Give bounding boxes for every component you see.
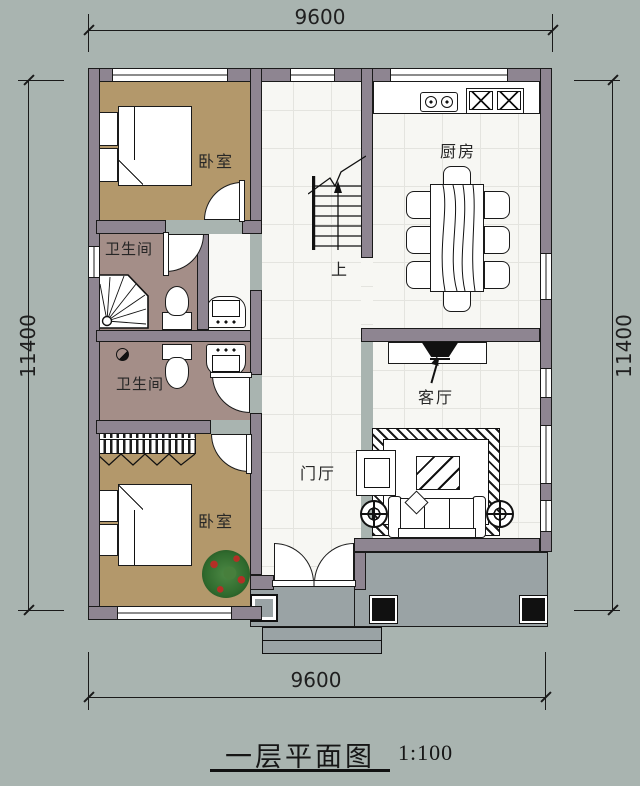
wall-entrance-stub-left bbox=[250, 575, 274, 590]
dining-table-woodgrain bbox=[431, 185, 483, 291]
potted-plant bbox=[202, 550, 250, 598]
room-label-bedroom-bottom: 卧室 bbox=[198, 508, 234, 532]
dining-chair bbox=[484, 191, 510, 219]
room-label-foyer: 门厅 bbox=[300, 460, 336, 484]
blanket-fold bbox=[119, 485, 143, 510]
wall-door-jamb bbox=[242, 220, 262, 234]
wall-bathroom-divider bbox=[96, 330, 262, 342]
sofa-cushion-line bbox=[449, 499, 450, 529]
floor-passage bbox=[361, 258, 373, 328]
dim-label-bottom: 9600 bbox=[266, 668, 366, 692]
side-table-round bbox=[360, 500, 388, 528]
dim-label-top: 9600 bbox=[270, 5, 370, 29]
entrance-door-leaves bbox=[272, 580, 356, 587]
nightstand bbox=[98, 148, 118, 182]
washbasin-upper-bowl bbox=[212, 300, 240, 317]
wall-bedroom-top-right bbox=[250, 68, 262, 234]
dining-chair bbox=[484, 261, 510, 289]
porch-column-right bbox=[520, 596, 547, 623]
stairs-up-label: 上 bbox=[331, 256, 349, 280]
dim-ext-line bbox=[552, 14, 553, 52]
wall-bathroom-bottom-bottom bbox=[96, 420, 211, 434]
nightstand bbox=[98, 112, 118, 146]
nightstand bbox=[98, 524, 118, 556]
floor-plan-canvas: 卧室 卫生间 卫生间 卧室 厨房 客厅 门厅 上 9600 9600 11400… bbox=[0, 0, 640, 786]
toilet-bowl-bottom bbox=[165, 357, 189, 389]
coffee-table bbox=[416, 456, 460, 490]
room-label-kitchen: 厨房 bbox=[440, 138, 476, 162]
dim-line-bottom bbox=[88, 697, 546, 698]
wall-outer-left bbox=[88, 68, 100, 620]
plan-title-underline bbox=[210, 769, 390, 772]
wall-bedroom-top-bottom bbox=[96, 220, 166, 234]
dining-chair bbox=[443, 290, 471, 312]
room-label-bedroom-top: 卧室 bbox=[198, 148, 234, 172]
washbasin-lower-bowl bbox=[212, 355, 240, 372]
cooktop-burner bbox=[441, 96, 453, 108]
window-hall-top bbox=[290, 68, 335, 82]
dining-chair bbox=[484, 226, 510, 254]
door-leaf-bathroom-bottom bbox=[210, 372, 252, 378]
toilet-bowl-top bbox=[165, 286, 189, 316]
dim-line-top bbox=[88, 30, 552, 31]
window-kitchen-right bbox=[540, 253, 552, 300]
sink-basin-right bbox=[497, 91, 521, 110]
washbasin-lower-taps bbox=[215, 348, 237, 352]
dim-ext-line bbox=[88, 652, 89, 710]
window-living-right-1 bbox=[540, 368, 552, 398]
dim-ext-line bbox=[88, 14, 89, 52]
window-bedroom-top bbox=[112, 68, 228, 82]
floor-drain bbox=[116, 348, 129, 361]
wardrobe-hanger-zigzag bbox=[96, 453, 196, 467]
wall-hall-left-upper bbox=[250, 290, 262, 375]
wardrobe-shelf-line bbox=[97, 438, 195, 439]
dim-label-left: 11400 bbox=[16, 314, 40, 378]
dim-label-right: 11400 bbox=[612, 314, 636, 378]
window-bedroom-bottom bbox=[117, 606, 232, 620]
window-living-right-2 bbox=[540, 425, 552, 484]
porch-step-2 bbox=[262, 640, 382, 654]
sofa-back bbox=[398, 528, 476, 538]
room-label-living-room: 客厅 bbox=[418, 384, 454, 408]
door-leaf-bedroom-bottom bbox=[246, 434, 252, 474]
corner-shower bbox=[98, 274, 150, 330]
window-bathroom-left bbox=[88, 246, 100, 278]
porch-column-middle bbox=[370, 596, 397, 623]
dining-chair bbox=[406, 191, 432, 219]
door-leaf-bedroom-top bbox=[239, 180, 245, 222]
window-kitchen-top bbox=[390, 68, 508, 82]
room-label-bathroom-top: 卫生间 bbox=[105, 238, 153, 259]
side-table-round bbox=[486, 500, 514, 528]
dim-ext-line bbox=[545, 652, 546, 710]
porch-step-1 bbox=[262, 627, 382, 641]
cooktop-burner bbox=[425, 96, 437, 108]
sink-basin-left bbox=[469, 91, 493, 110]
dining-chair bbox=[406, 261, 432, 289]
window-living-right-3 bbox=[540, 500, 552, 532]
washbasin-upper-taps bbox=[215, 320, 237, 324]
wall-living-bottom bbox=[354, 538, 540, 552]
door-leaf-bathroom-top bbox=[163, 232, 169, 276]
room-label-bathroom-bottom: 卫生间 bbox=[116, 373, 164, 394]
nightstand bbox=[98, 490, 118, 522]
staircase bbox=[308, 150, 366, 264]
wall-kitchen-living-divider bbox=[361, 328, 540, 342]
blanket-fold bbox=[119, 160, 143, 185]
armchair-cushion bbox=[364, 458, 390, 488]
plan-scale: 1:100 bbox=[398, 740, 453, 766]
dining-chair bbox=[406, 226, 432, 254]
